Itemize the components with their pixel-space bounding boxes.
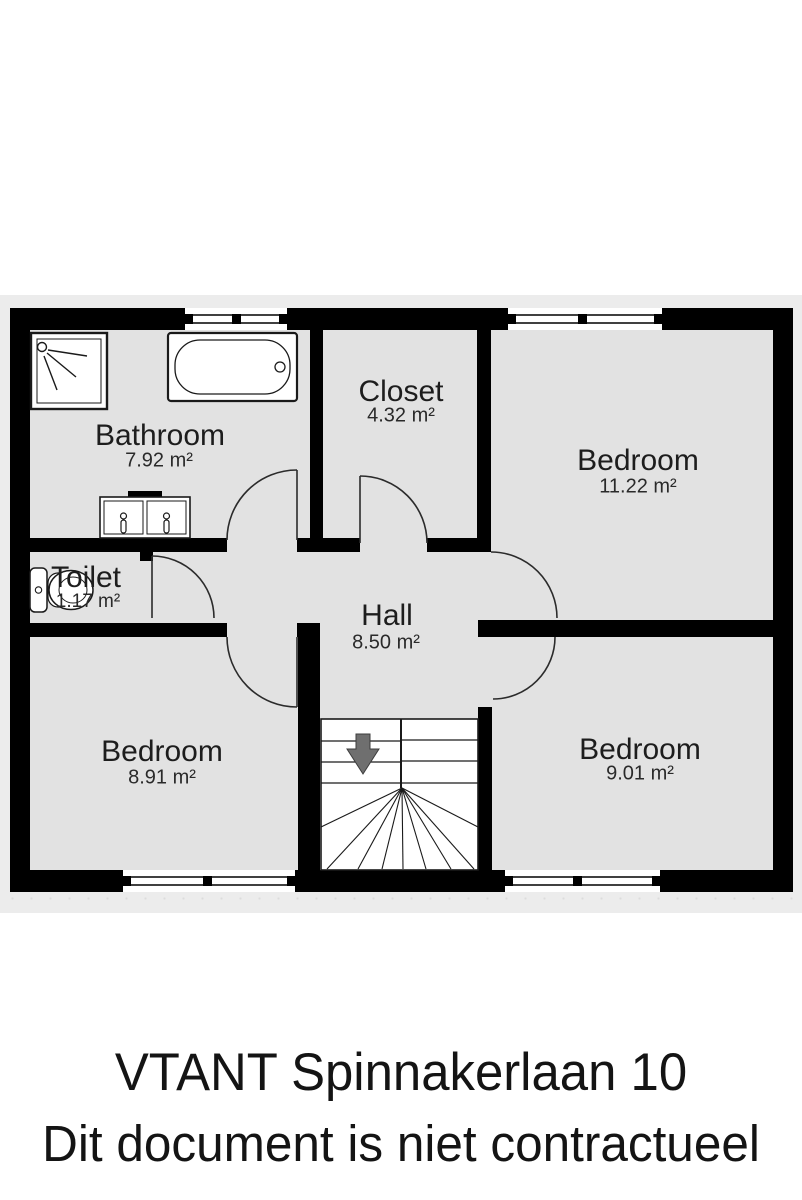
double-sink-icon: [100, 491, 190, 538]
staircase-icon: [321, 719, 478, 870]
room-area-hall: 8.50 m²: [352, 632, 420, 655]
wall-stairs-right: [478, 707, 492, 870]
room-area-closet: 4.32 m²: [367, 405, 435, 428]
shower-icon: [31, 333, 107, 409]
wall-top: [10, 308, 793, 330]
wall-left: [10, 308, 30, 892]
room-label-toilet: Toilet: [51, 561, 121, 595]
room-area-toilet: 1.17 m²: [56, 591, 120, 613]
wall-closet-south: [427, 538, 491, 552]
wall-bathroom-closet: [310, 330, 323, 540]
window-bottom-bedroom-br: [505, 870, 660, 892]
wall-hall-bedroom-br: [478, 620, 773, 637]
room-label-bedroom-tr: Bedroom: [577, 444, 699, 478]
window-top-bedroom: [508, 308, 662, 330]
wall-bathroom-south-a: [28, 538, 227, 552]
room-area-bedroom-bl: 8.91 m²: [128, 767, 196, 790]
room-label-bedroom-bl: Bedroom: [101, 735, 223, 769]
wall-right: [773, 308, 793, 892]
wall-stairs-left: [298, 630, 320, 870]
window-bottom-bedroom-bl: [123, 870, 295, 892]
floorplan-page: Bathroom 7.92 m² Closet 4.32 m² Bedroom …: [0, 0, 802, 1200]
wall-closet-bedroom: [477, 330, 491, 552]
footer-disclaimer-line: Dit document is niet contractueel: [12, 1114, 790, 1173]
room-label-hall: Hall: [361, 599, 413, 633]
wall-toilet-south: [10, 623, 227, 637]
jamb-toilet-door: [140, 538, 153, 561]
room-area-bathroom: 7.92 m²: [125, 450, 193, 473]
footer-address-line: VTANT Spinnakerlaan 10: [16, 1042, 786, 1103]
wall-bathroom-south-b: [297, 538, 360, 552]
room-area-bedroom-tr: 11.22 m²: [599, 476, 676, 499]
room-area-bedroom-br: 9.01 m²: [606, 763, 674, 786]
room-label-bathroom: Bathroom: [95, 419, 225, 453]
window-top-bathroom: [185, 308, 287, 330]
bathtub-icon: [168, 333, 297, 401]
